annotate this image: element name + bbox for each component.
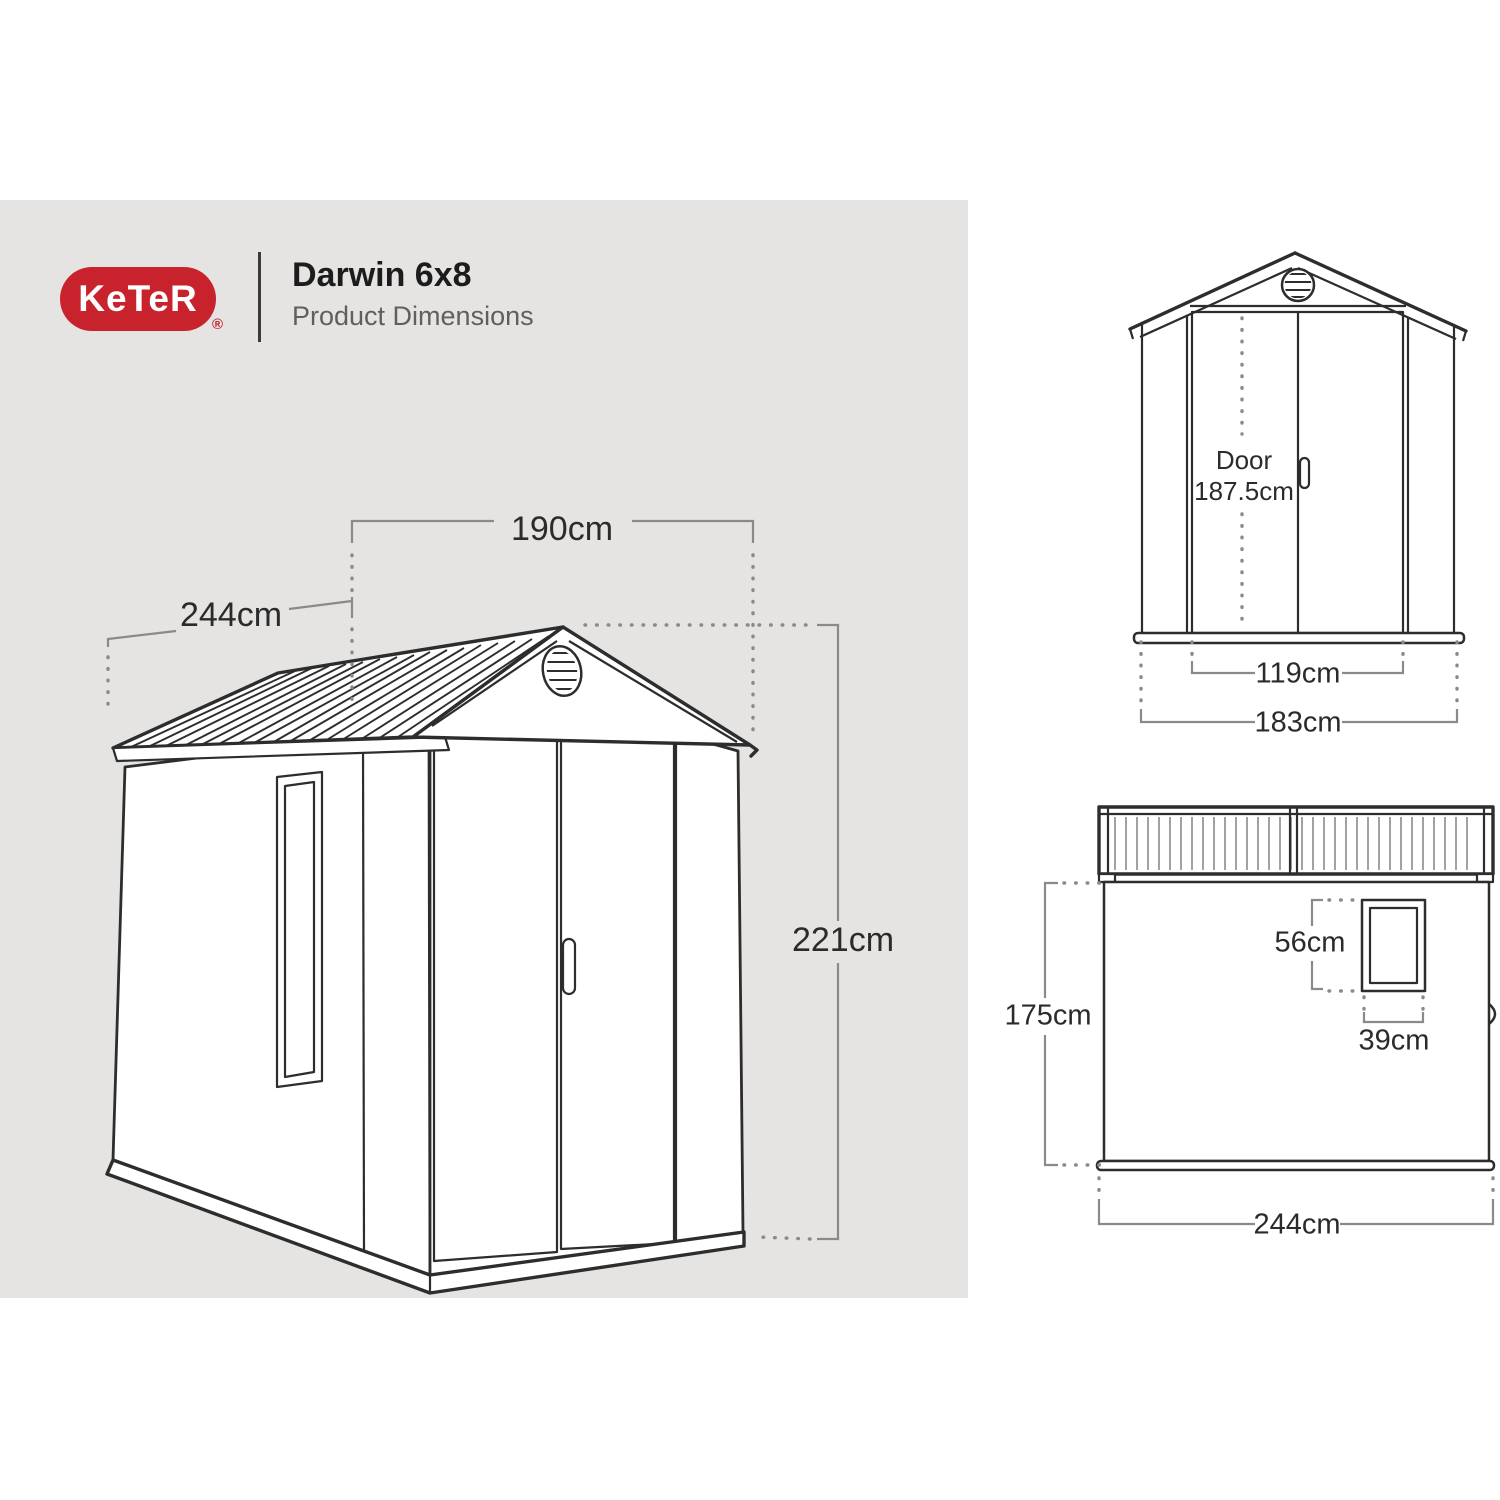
side-window [1362, 900, 1425, 991]
iso-depth-label: 244cm [180, 596, 282, 634]
front-view-drawing [1130, 253, 1466, 643]
iso-right-door [561, 736, 674, 1249]
door-label: Door [1216, 445, 1273, 475]
front-door-handle [1300, 458, 1309, 488]
side-depth-label: 244cm [1253, 1209, 1340, 1241]
front-view-diagram: Door 187.5cm 119cm 183cm [1020, 230, 1500, 760]
iso-width-label: 190cm [511, 510, 613, 548]
window-width-label: 39cm [1359, 1025, 1430, 1057]
overall-width-label: 183cm [1254, 707, 1341, 739]
isometric-shed-diagram: 190cm 244cm 221cm [0, 197, 968, 1298]
door-height-label: 187.5cm [1194, 476, 1294, 506]
iso-shed-drawing [107, 627, 757, 1293]
iso-height-label: 221cm [792, 921, 894, 959]
door-width-label: 119cm [1256, 658, 1341, 690]
door-handle [563, 939, 575, 994]
side-wall [1104, 882, 1489, 1161]
side-view-drawing [1097, 807, 1495, 1170]
side-view-diagram: 175cm 56cm 39cm 244cm [1000, 790, 1500, 1260]
dimension-sheet: KeTeR ® Darwin 6x8 Product Dimensions [0, 0, 1500, 1500]
side-height-label: 175cm [1004, 1000, 1091, 1032]
iso-left-door [434, 734, 557, 1261]
side-base [1097, 1161, 1494, 1170]
window-height-label: 56cm [1275, 927, 1346, 959]
side-window [277, 772, 322, 1087]
front-base [1134, 633, 1464, 643]
